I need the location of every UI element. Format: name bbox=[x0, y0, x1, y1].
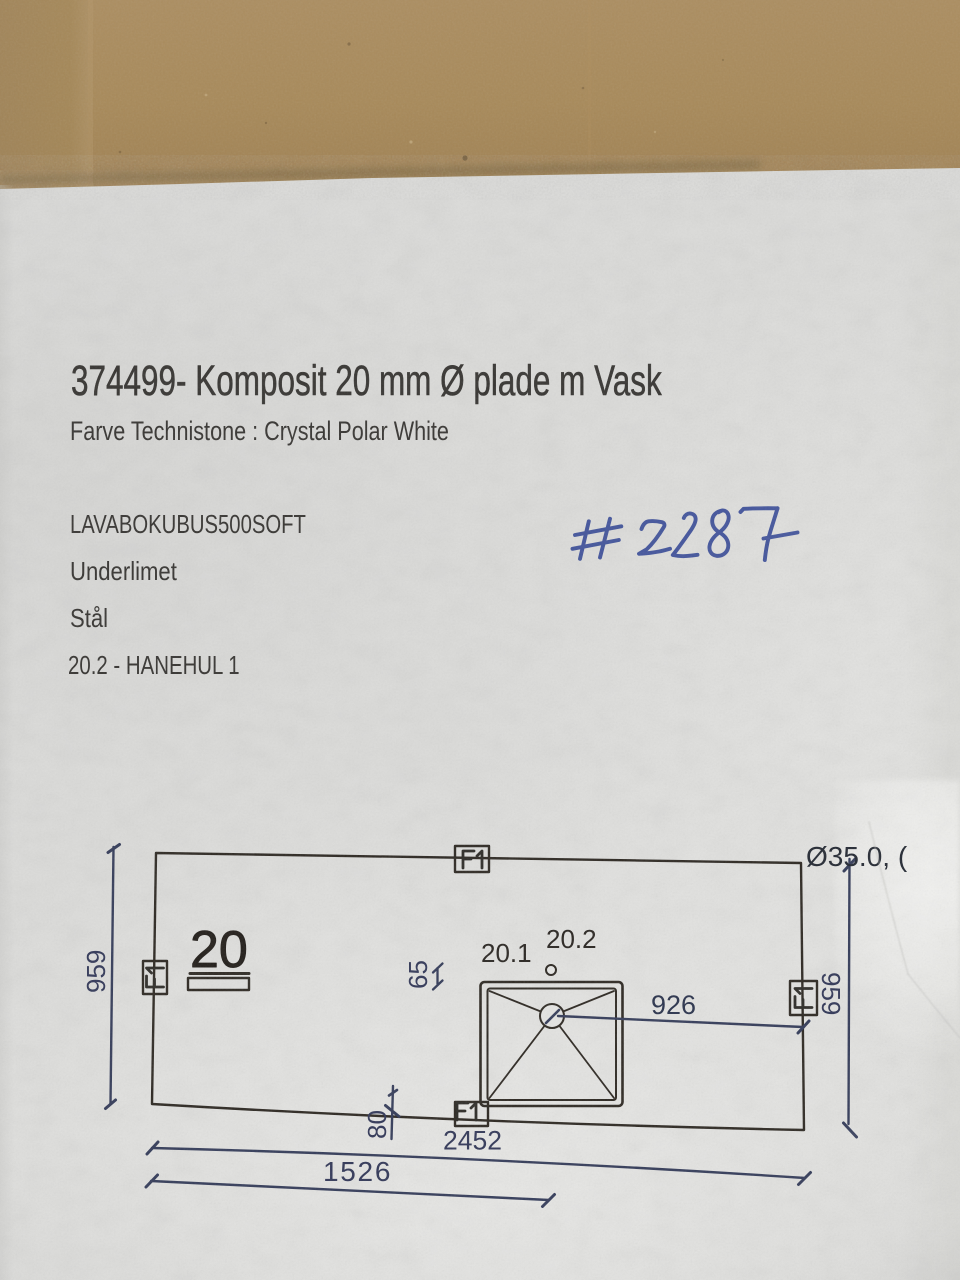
svg-text:959: 959 bbox=[816, 972, 846, 1015]
svg-text:65: 65 bbox=[403, 960, 433, 989]
svg-text:2452: 2452 bbox=[443, 1126, 502, 1156]
svg-text:20: 20 bbox=[190, 921, 248, 979]
svg-text:80: 80 bbox=[362, 1110, 392, 1139]
svg-text:959: 959 bbox=[81, 950, 111, 993]
svg-text:20.1: 20.1 bbox=[481, 938, 532, 968]
svg-text:1526: 1526 bbox=[323, 1156, 392, 1187]
svg-text:Ø35.0, (: Ø35.0, ( bbox=[806, 841, 908, 872]
svg-text:926: 926 bbox=[651, 990, 696, 1020]
svg-text:20.2: 20.2 bbox=[546, 924, 597, 954]
